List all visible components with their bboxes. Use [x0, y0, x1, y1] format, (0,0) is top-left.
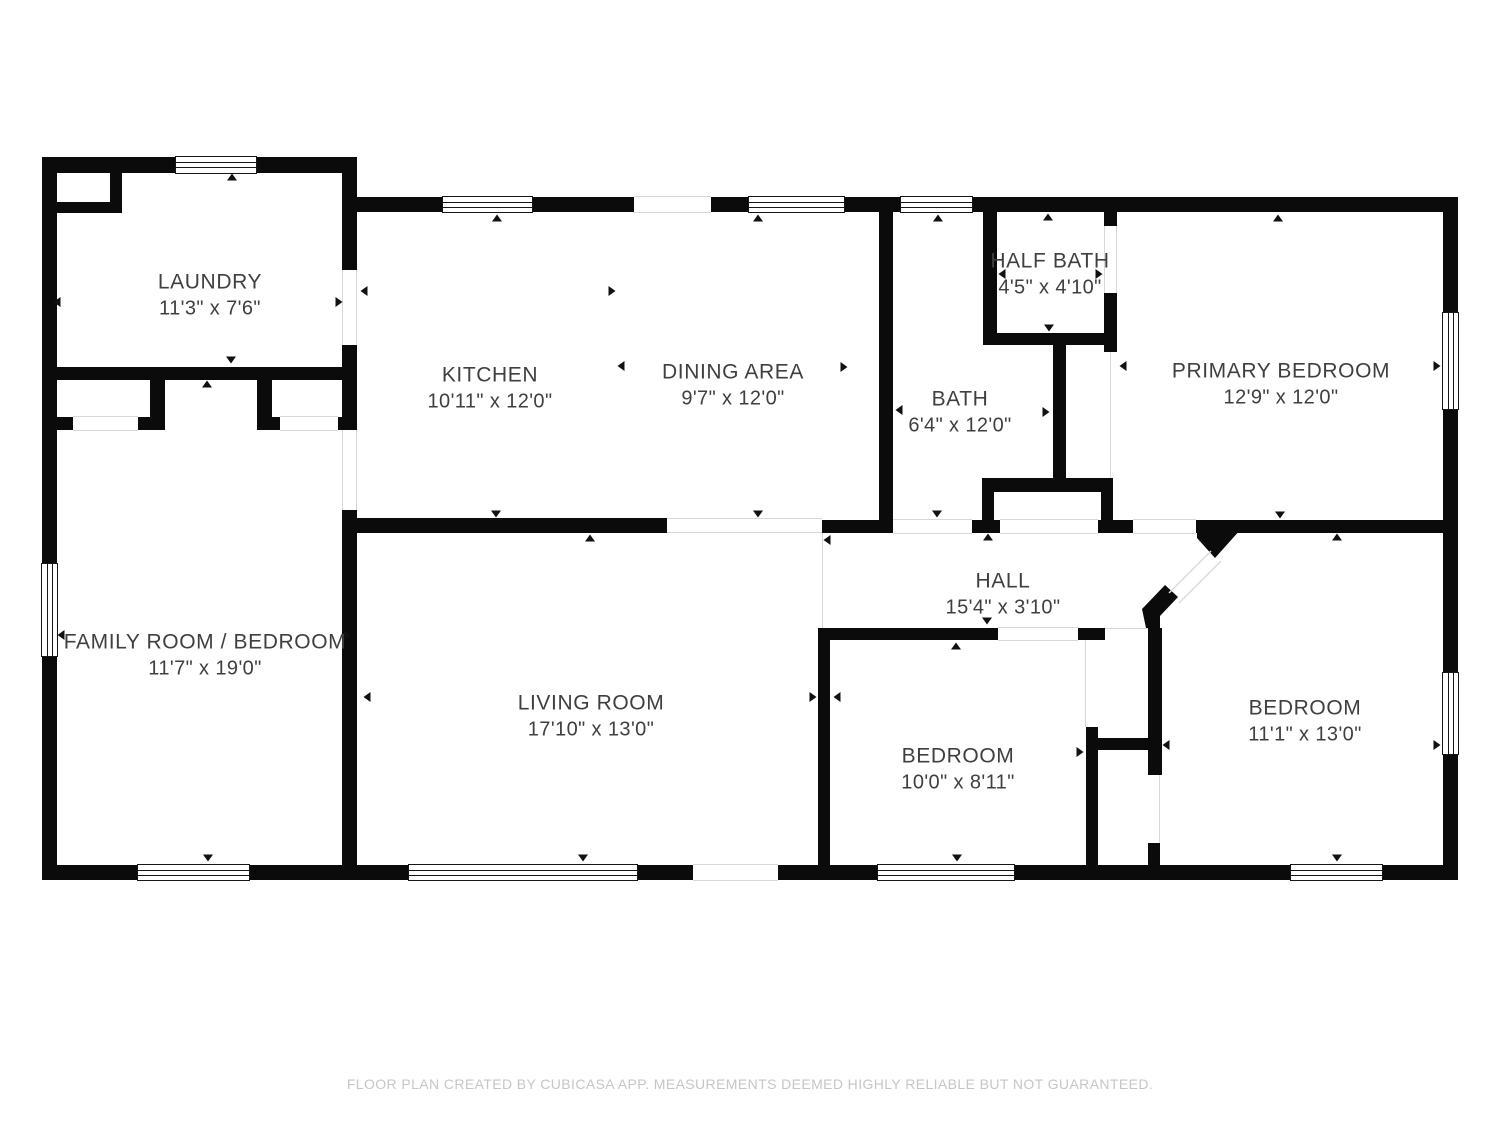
- window-family-left: [41, 563, 58, 657]
- room-name: LAUNDRY: [158, 269, 262, 296]
- wall-outer-right: [1443, 197, 1458, 880]
- window-family-bottom: [137, 864, 250, 881]
- window-bath-top: [900, 196, 973, 213]
- dimension-arrow: [1043, 214, 1053, 221]
- dimension-arrow: [609, 286, 616, 296]
- room-name: HALL: [946, 568, 1061, 595]
- opening-line-hall-living: [822, 533, 823, 628]
- room-label-kitchen: KITCHEN 10'11" x 12'0": [428, 362, 553, 415]
- dimension-arrow: [203, 855, 213, 862]
- dimension-arrow: [491, 511, 501, 518]
- dimension-arrow: [1275, 512, 1285, 519]
- dimension-arrow: [932, 511, 942, 518]
- room-dimensions: 12'9" x 12'0": [1172, 385, 1390, 411]
- opening-family-kitchen: [342, 430, 357, 510]
- room-label-dining-area: DINING AREA 9'7" x 12'0": [662, 359, 804, 412]
- dimension-arrow: [1043, 407, 1050, 417]
- room-dimensions: 17'10" x 13'0": [518, 717, 665, 743]
- room-label-living-room: LIVING ROOM 17'10" x 13'0": [518, 690, 665, 743]
- opening-line-diagonal-2: [1179, 561, 1221, 603]
- dimension-arrow: [227, 174, 237, 181]
- room-dimensions: 9'7" x 12'0": [662, 386, 804, 412]
- dimension-arrow: [952, 855, 962, 862]
- wall-bath-right-divider: [1053, 345, 1066, 483]
- dimension-arrow: [202, 381, 212, 388]
- door-opening-front: [693, 864, 778, 881]
- opening-line-midbedroom-closet: [1085, 640, 1086, 727]
- window-rightbedroom-right: [1442, 672, 1459, 755]
- room-label-hall: HALL 15'4" x 3'10": [946, 568, 1061, 621]
- wall-midbedroom-top: [822, 628, 998, 640]
- opening-closet-a: [73, 416, 138, 431]
- wall-rightbedroom-closet-stub: [1148, 843, 1160, 868]
- window-laundry-top: [175, 156, 257, 174]
- room-label-half-bath: HALF BATH 4'5" x 4'10": [990, 248, 1109, 301]
- wall-bath-left: [879, 212, 893, 533]
- opening-closet-b: [280, 416, 338, 431]
- opening-dining-living: [667, 518, 822, 533]
- window-primary-right: [1442, 312, 1459, 410]
- opening-line-diagonal-1: [1169, 551, 1211, 593]
- wall-outer-left: [42, 157, 57, 880]
- dimension-arrow: [1273, 215, 1283, 222]
- wall-bedroom-closet-divider: [1086, 738, 1148, 750]
- wall-kitchen-living-divider: [342, 518, 667, 533]
- wall-hall-top-3: [1098, 520, 1133, 533]
- wall-laundry-bottom: [42, 367, 357, 380]
- room-dimensions: 11'1" x 13'0": [1248, 722, 1361, 748]
- wall-vestibule-stub-left: [982, 492, 994, 520]
- room-name: FAMILY ROOM / BEDROOM: [64, 629, 347, 656]
- opening-line-primary-closet: [1110, 352, 1111, 478]
- dimension-arrow: [1332, 855, 1342, 862]
- wall-family-right-upper: [342, 380, 357, 430]
- room-label-laundry: LAUNDRY 11'3" x 7'6": [158, 269, 262, 322]
- room-name: BEDROOM: [1248, 695, 1361, 722]
- door-opening-primary-bedroom: [1133, 519, 1196, 534]
- dimension-arrow: [1120, 361, 1127, 371]
- room-name: LIVING ROOM: [518, 690, 665, 717]
- wall-halfbath-right-bottom: [1104, 293, 1117, 352]
- window-living-bottom: [408, 864, 638, 881]
- wall-laundry-nook-right: [110, 157, 122, 213]
- dimension-arrow: [951, 643, 961, 650]
- room-label-family-room-bedroom: FAMILY ROOM / BEDROOM 11'7" x 19'0": [64, 629, 347, 682]
- room-dimensions: 6'4" x 12'0": [908, 413, 1011, 439]
- door-opening-rear: [634, 196, 711, 213]
- door-opening-mid-bedroom: [998, 627, 1078, 641]
- room-name: BEDROOM: [901, 743, 1014, 770]
- wall-halfbath-right-top: [1104, 212, 1117, 226]
- dimension-arrow: [983, 534, 993, 541]
- room-dimensions: 15'4" x 3'10": [946, 595, 1061, 621]
- wall-laundry-right: [342, 157, 357, 380]
- dimension-arrow: [364, 692, 371, 702]
- door-opening-hall-closet: [1000, 519, 1098, 534]
- wall-family-right-lower: [342, 510, 357, 880]
- room-dimensions: 10'0" x 8'11": [901, 770, 1014, 796]
- room-name: DINING AREA: [662, 359, 804, 386]
- wall-halfbath-bottom: [983, 333, 1117, 345]
- wall-primary-bottom: [1196, 520, 1458, 533]
- dimension-arrow: [933, 215, 943, 222]
- wall-closet-a-bottom-right: [138, 417, 165, 430]
- wall-vestibule-closet-bar: [982, 478, 1113, 492]
- dimension-arrow: [1434, 740, 1441, 750]
- room-label-bedroom-middle: BEDROOM 10'0" x 8'11": [901, 743, 1014, 796]
- dimension-arrow: [753, 511, 763, 518]
- room-name: KITCHEN: [428, 362, 553, 389]
- dimension-arrow: [226, 357, 236, 364]
- dimension-arrow: [841, 362, 848, 372]
- dimension-arrow: [1332, 534, 1342, 541]
- dimension-arrow: [336, 297, 343, 307]
- dimension-arrow: [834, 692, 841, 702]
- room-label-bedroom-right: BEDROOM 11'1" x 13'0": [1248, 695, 1361, 748]
- door-opening-bath: [893, 519, 972, 534]
- dimension-arrow: [618, 361, 625, 371]
- room-dimensions: 11'3" x 7'6": [158, 296, 262, 322]
- dimension-arrow: [1434, 361, 1441, 371]
- room-label-bath: BATH 6'4" x 12'0": [908, 386, 1011, 439]
- dimension-arrow: [824, 535, 831, 545]
- wall-midbedroom-top-right: [1078, 628, 1105, 640]
- door-opening-laundry: [342, 270, 357, 345]
- dimension-arrow: [492, 215, 502, 222]
- wall-closet-a-bottom-left: [50, 417, 73, 430]
- room-name: PRIMARY BEDROOM: [1172, 358, 1390, 385]
- wall-midbedroom-left: [818, 628, 830, 865]
- dimension-arrow: [896, 405, 903, 415]
- room-name: HALF BATH: [990, 248, 1109, 275]
- wall-rightbedroom-left: [1148, 628, 1162, 775]
- floor-plan: LAUNDRY 11'3" x 7'6" KITCHEN 10'11" x 12…: [0, 0, 1500, 1125]
- room-label-primary-bedroom: PRIMARY BEDROOM 12'9" x 12'0": [1172, 358, 1390, 411]
- opening-line-hall-closet-top: [1105, 628, 1148, 629]
- dimension-arrow: [578, 855, 588, 862]
- wall-vestibule-stub-right: [1101, 492, 1113, 520]
- dimension-arrow: [1163, 740, 1170, 750]
- room-name: BATH: [908, 386, 1011, 413]
- window-dining-top: [748, 196, 845, 213]
- dimension-arrow: [585, 535, 595, 542]
- dimension-arrow: [1077, 747, 1084, 757]
- window-rightbedroom-bottom: [1290, 864, 1383, 881]
- wall-diagonal-lower-stub: [1142, 585, 1178, 628]
- window-kitchen-top: [442, 196, 533, 213]
- wall-closet-b-bottom-left: [257, 417, 280, 430]
- window-midbedroom-bottom: [877, 864, 1015, 881]
- room-dimensions: 4'5" x 4'10": [990, 275, 1109, 301]
- room-dimensions: 10'11" x 12'0": [428, 389, 553, 415]
- dimension-arrow: [361, 286, 368, 296]
- dimension-arrow: [753, 215, 763, 222]
- wall-hall-top-2: [972, 520, 1000, 533]
- dimension-arrow: [1044, 325, 1054, 332]
- opening-line-rightbedroom-closet: [1159, 775, 1160, 843]
- footer-disclaimer: FLOOR PLAN CREATED BY CUBICASA APP. MEAS…: [0, 1076, 1500, 1092]
- dimension-arrow: [810, 692, 817, 702]
- room-dimensions: 11'7" x 19'0": [64, 656, 347, 682]
- dimension-arrow: [54, 297, 61, 307]
